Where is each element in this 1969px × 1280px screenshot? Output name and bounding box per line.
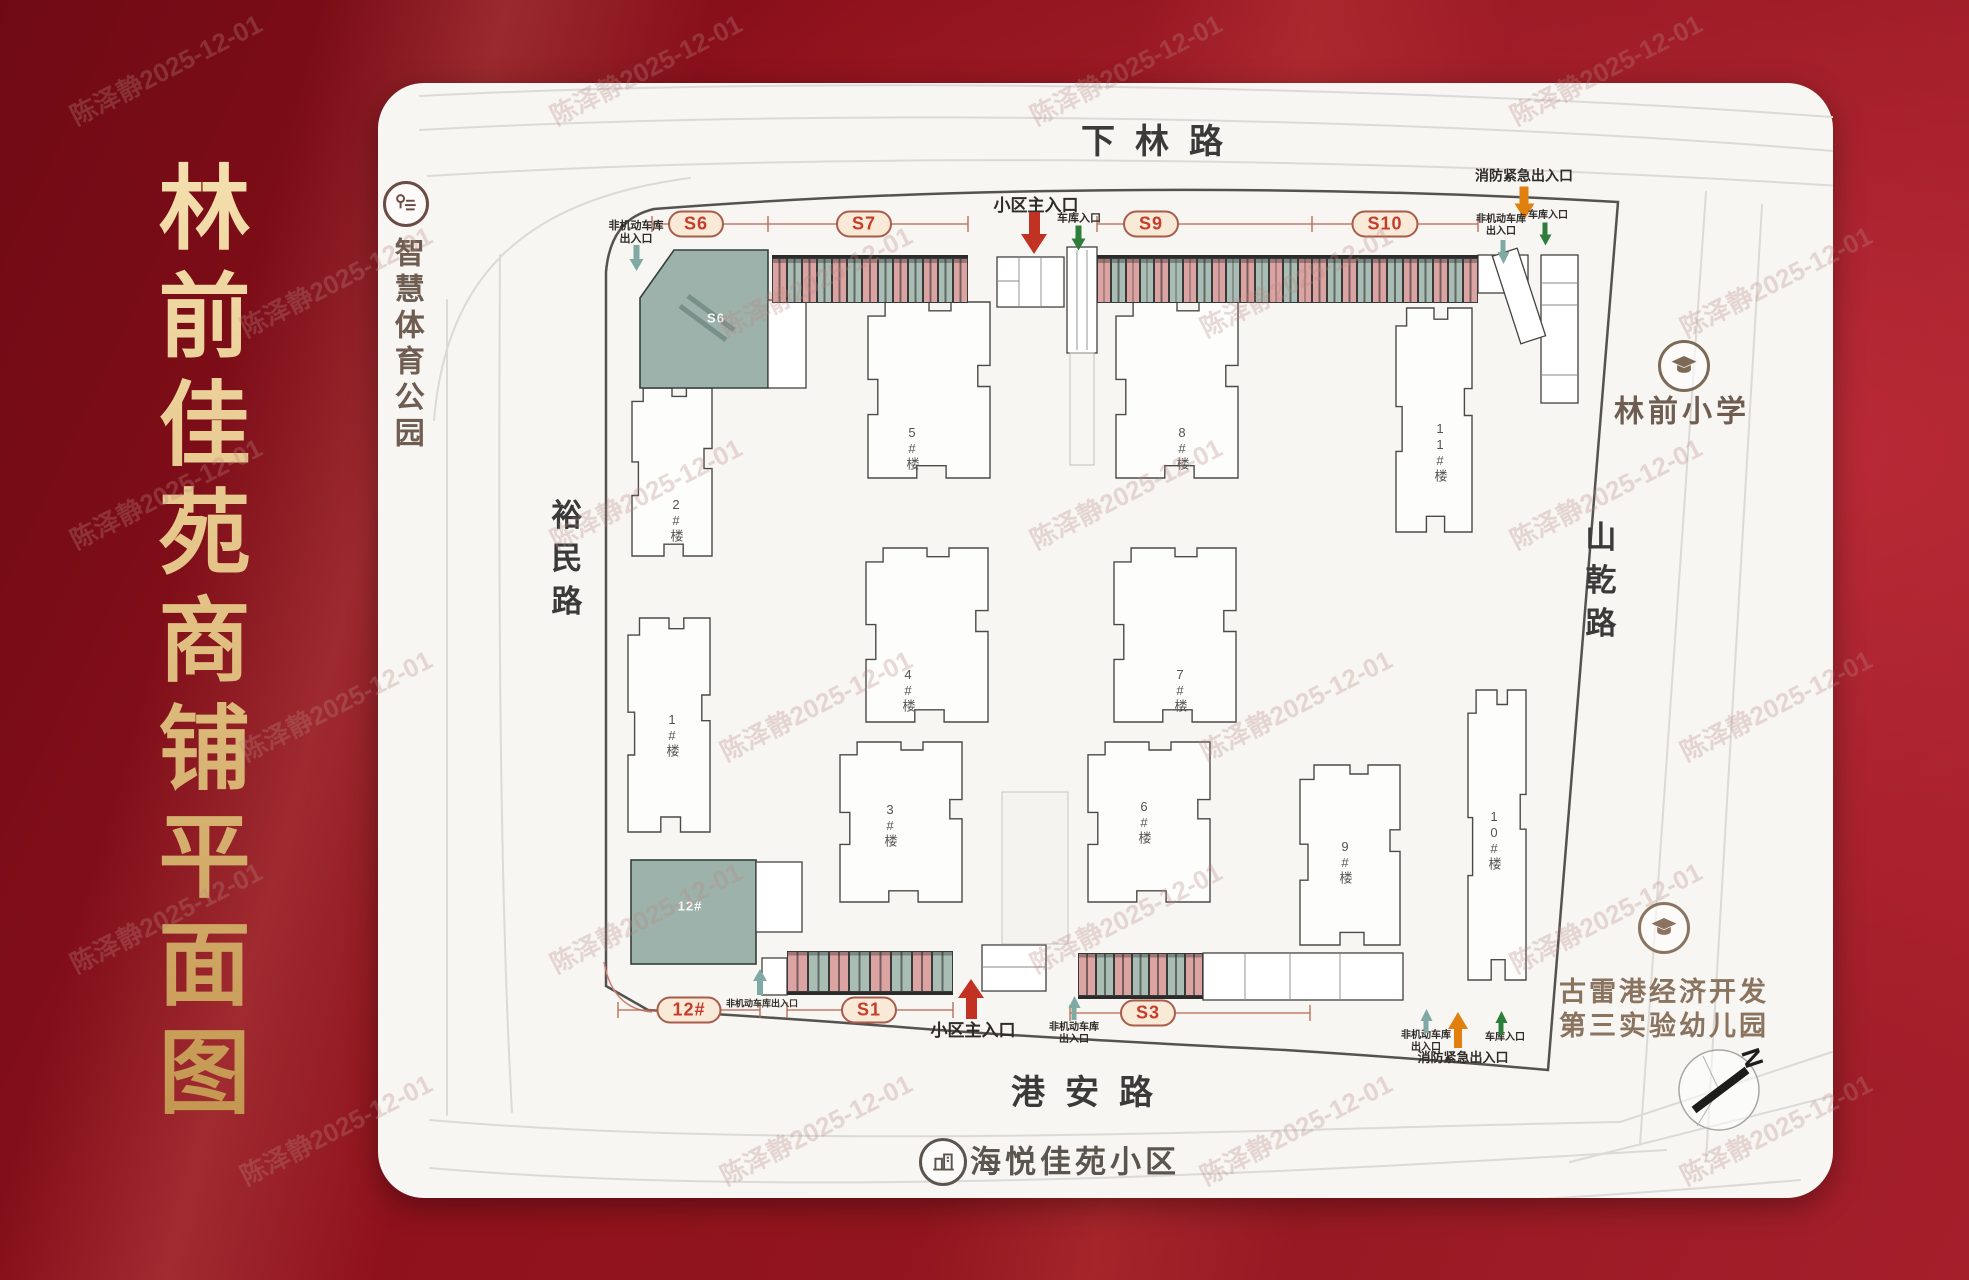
entrance-label: 车库入口 [1528, 210, 1568, 222]
shop-unit [1372, 258, 1387, 303]
shop-unit [1240, 258, 1254, 303]
building-label: 2#楼 [667, 497, 686, 543]
building-label: 1#楼 [663, 712, 682, 758]
shop-unit [772, 258, 787, 303]
building-glyph [930, 1149, 956, 1175]
arrow-stem [1454, 1029, 1462, 1048]
graduation-cap-glyph [1649, 913, 1679, 943]
shop-unit [849, 951, 870, 992]
shop-unit [829, 951, 850, 992]
arrow-head [1448, 1012, 1468, 1029]
section-pill-12: 12# [656, 997, 721, 1024]
shop-unit [1078, 953, 1096, 996]
community-label: 海悦佳苑小区 [970, 1144, 1180, 1183]
anchor-12-label: 12# [678, 899, 703, 914]
shop-unit [802, 258, 817, 303]
shop-unit [1114, 953, 1132, 996]
entrance-label: 小区主入口 [931, 1021, 1016, 1041]
entrance-label: 非机动车库 出入口 [1049, 1022, 1099, 1046]
arrow-head [1420, 1009, 1432, 1021]
arrow-stem [1499, 1023, 1504, 1035]
entrance-arrow [1068, 996, 1081, 1020]
shop-unit [1387, 258, 1402, 303]
entrance-label: 非机动车库出入口 [726, 999, 798, 1010]
arrow-stem [757, 981, 763, 995]
shop-unit [847, 258, 862, 303]
shop-unit [862, 258, 877, 303]
building-label: 10#楼 [1485, 809, 1504, 871]
shop-unit [1126, 258, 1140, 303]
graduation-cap-glyph [1669, 351, 1699, 381]
arrow-stem [1543, 223, 1548, 235]
shop-unit [908, 258, 923, 303]
section-pill-s1: S1 [841, 997, 897, 1024]
building-label: 3#楼 [881, 802, 900, 848]
arrow-head [958, 979, 984, 998]
shop-unit [1169, 258, 1183, 303]
shop-unit [1463, 258, 1478, 303]
shop-unit [817, 258, 832, 303]
entrance-label: 消防紧急出入口 [1475, 168, 1573, 185]
section-pill-s7: S7 [836, 211, 892, 238]
entrance-label: 消防紧急出入口 [1417, 1050, 1508, 1066]
road-label-right: 山乾路 [1578, 521, 1617, 650]
shop-unit [1312, 258, 1327, 303]
shop-unit [1448, 258, 1463, 303]
shop-unit [787, 258, 802, 303]
shop-unit [912, 951, 933, 992]
entrance-arrow [1448, 1012, 1468, 1048]
entrance-arrow [1495, 1011, 1508, 1035]
central-court-outline [1002, 792, 1068, 944]
primary-school-icon [1658, 340, 1710, 392]
shop-unit [1283, 258, 1297, 303]
shop-unit [923, 258, 938, 303]
kindergarten-label-line2: 第三实验幼儿园 [1559, 1010, 1769, 1044]
sports-park-icon [383, 181, 429, 227]
building-outline [866, 548, 988, 722]
building-label: 8#楼 [1173, 425, 1192, 471]
building-outline [868, 302, 990, 478]
road-label-left: 裕民路 [544, 499, 583, 628]
arrow-head [1068, 996, 1080, 1008]
anchor-s6-label: S6 [707, 311, 725, 326]
section-pill-s10: S10 [1351, 211, 1418, 238]
entrance-arrow [958, 979, 984, 1019]
shop-unit [1327, 258, 1342, 303]
building-label: 6#楼 [1135, 799, 1154, 845]
shop-unit [1197, 258, 1211, 303]
shop-unit [1298, 258, 1312, 303]
entrance-arrow [1071, 226, 1086, 251]
shop-unit [953, 258, 968, 303]
driveway-outline [1070, 353, 1094, 465]
building-label: 4#楼 [899, 667, 918, 713]
boundary-accent-line [604, 962, 652, 1012]
arrow-head [1495, 1011, 1507, 1023]
building-label: 5#楼 [903, 425, 922, 471]
arrow-stem [966, 998, 977, 1019]
shop-unit [1140, 258, 1154, 303]
shop-strip [772, 255, 968, 303]
arrow-stem [633, 245, 639, 259]
entrance-label: 非机动车库 出入口 [1476, 214, 1526, 238]
entrance-arrow [753, 969, 767, 995]
arrow-stem [1029, 212, 1040, 234]
park-glyph [393, 191, 419, 217]
shop-unit [1183, 258, 1197, 303]
shop-unit [1185, 953, 1203, 996]
shop-unit [1149, 953, 1167, 996]
arrow-head [1497, 252, 1509, 264]
shop-unit [1212, 258, 1226, 303]
shop-unit [832, 258, 847, 303]
section-pill-s6: S6 [668, 211, 724, 238]
section-pill-s3: S3 [1120, 1000, 1176, 1027]
shop-strip [1078, 953, 1203, 999]
shop-unit [1132, 953, 1150, 996]
arrow-head [753, 969, 767, 981]
shop-unit [1433, 258, 1448, 303]
arrow-stem [1501, 240, 1506, 252]
arrow-stem [1072, 1008, 1077, 1020]
shop-unit [938, 258, 953, 303]
anchor-blocks [631, 250, 806, 964]
building-label: 7#楼 [1171, 667, 1190, 713]
entrance-arrow [1021, 212, 1047, 254]
shop-unit [1167, 953, 1185, 996]
shop-strip [1097, 255, 1312, 303]
shop-unit [1226, 258, 1240, 303]
building-outline [840, 742, 962, 902]
arrow-head [1021, 234, 1047, 254]
primary-school-label: 林前小学 [1614, 393, 1750, 431]
shop-unit [1418, 258, 1433, 303]
shop-strip [1312, 255, 1478, 303]
shop-unit [1096, 953, 1114, 996]
shop-unit [808, 951, 829, 992]
page-title: 林前佳苑商铺平面图 [138, 160, 254, 1140]
road-label-top: 下林路 [1061, 121, 1243, 164]
section-pill-s9: S9 [1123, 211, 1179, 238]
shop-strip [787, 951, 953, 995]
entrance-label: 车库入口 [1057, 212, 1101, 225]
arrow-head [1071, 239, 1085, 251]
shop-unit [893, 258, 908, 303]
shop-unit [1269, 258, 1283, 303]
arrow-head [1539, 235, 1551, 246]
shop-unit [1255, 258, 1269, 303]
shop-unit [1097, 258, 1111, 303]
page-root: 林前佳苑商铺平面图 [0, 0, 1969, 1280]
entrance-arrow [1497, 240, 1510, 264]
sports-park-label: 智慧体育公园 [387, 237, 425, 453]
shop-unit [878, 258, 893, 303]
shop-unit [932, 951, 953, 992]
shop-unit [1111, 258, 1125, 303]
shop-unit [1342, 258, 1357, 303]
building-label: 9#楼 [1336, 839, 1355, 885]
road-label-bottom: 港安路 [991, 1072, 1173, 1115]
building-outline [1396, 308, 1472, 532]
entrance-arrow [1539, 223, 1552, 246]
entrance-label: 非机动车库 出入口 [609, 220, 664, 246]
shop-unit [1403, 258, 1418, 303]
arrow-stem [1424, 1021, 1429, 1033]
community-icon [919, 1138, 967, 1186]
kindergarten-icon [1638, 902, 1690, 954]
arrow-head [629, 259, 643, 271]
building-label: 11#楼 [1431, 421, 1450, 483]
arrow-stem [1520, 187, 1529, 204]
shop-unit [787, 951, 808, 992]
shop-unit [891, 951, 912, 992]
arrow-stem [1075, 226, 1081, 239]
kindergarten-label-line1: 古雷港经济开发 [1559, 976, 1769, 1010]
shop-unit [1357, 258, 1372, 303]
entrance-arrow [1420, 1009, 1433, 1033]
shop-unit [870, 951, 891, 992]
shop-unit [1154, 258, 1168, 303]
entrance-arrow [629, 245, 644, 271]
